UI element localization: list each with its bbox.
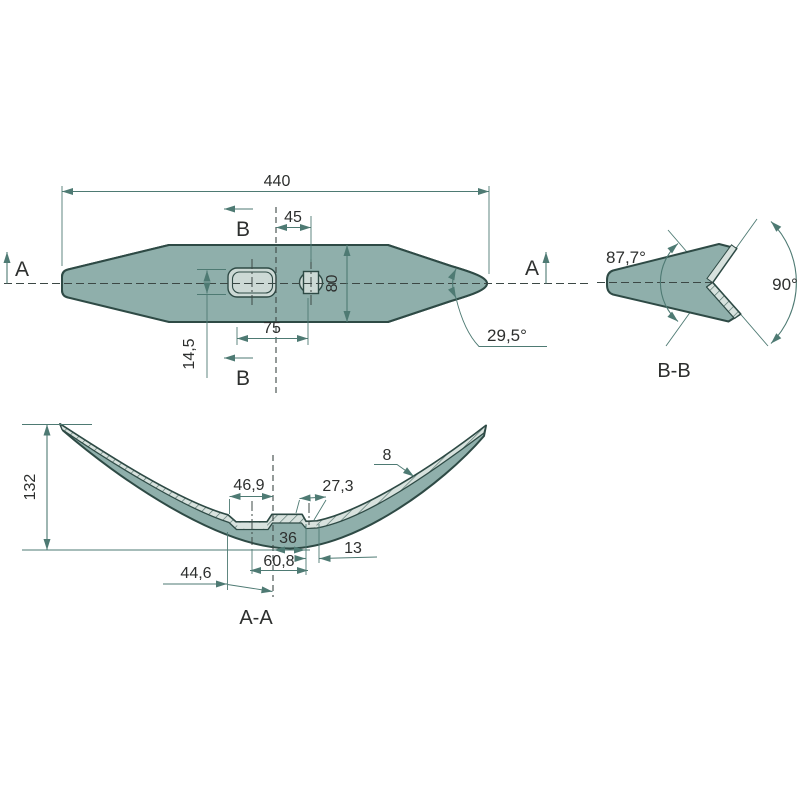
- section-bb-view: 87,7° 90° B-B: [597, 219, 798, 382]
- dim-440-label: 440: [264, 173, 291, 190]
- dim-75-label: 75: [263, 320, 281, 337]
- section-b-label-top: B: [236, 218, 250, 241]
- dim-13-label: 13: [344, 540, 362, 557]
- top-view: 440 45 80 75 14,5: [4, 173, 592, 395]
- section-bb-title: B-B: [657, 360, 690, 382]
- dim-thickness: 8: [374, 447, 414, 477]
- section-b-label-bottom: B: [236, 367, 250, 390]
- dim-14-5-label: 14,5: [181, 338, 198, 369]
- dim-27-3-label: 27,3: [322, 478, 353, 495]
- dim-90-label: 90°: [772, 275, 798, 294]
- dim-80-label: 80: [324, 275, 341, 293]
- section-aa-title: A-A: [239, 607, 273, 629]
- section-a-label-right: A: [525, 257, 539, 280]
- section-a-label-left: A: [15, 258, 29, 281]
- section-aa-view: 132 46,9 27,3 8 36: [22, 424, 486, 629]
- dim-opening-angle: 90°: [771, 222, 798, 344]
- dim-46-9-label: 46,9: [233, 477, 264, 494]
- dim-29-5-label: 29,5°: [487, 326, 527, 345]
- dim-flat-left: 46,9: [230, 477, 274, 514]
- dim-44-6-label: 44,6: [180, 565, 211, 582]
- dim-hole-span: 60,8: [250, 549, 308, 574]
- dim-87-7-label: 87,7°: [606, 248, 646, 267]
- aa-hole-gap: [307, 522, 317, 528]
- dim-60-8-label: 60,8: [263, 553, 294, 570]
- technical-drawing-page: 440 45 80 75 14,5: [0, 0, 800, 800]
- dim-8-label: 8: [383, 447, 392, 464]
- technical-drawing: 440 45 80 75 14,5: [0, 0, 800, 800]
- dim-132-label: 132: [22, 474, 39, 501]
- dim-45-label: 45: [284, 209, 302, 226]
- dim-36-label: 36: [279, 530, 297, 547]
